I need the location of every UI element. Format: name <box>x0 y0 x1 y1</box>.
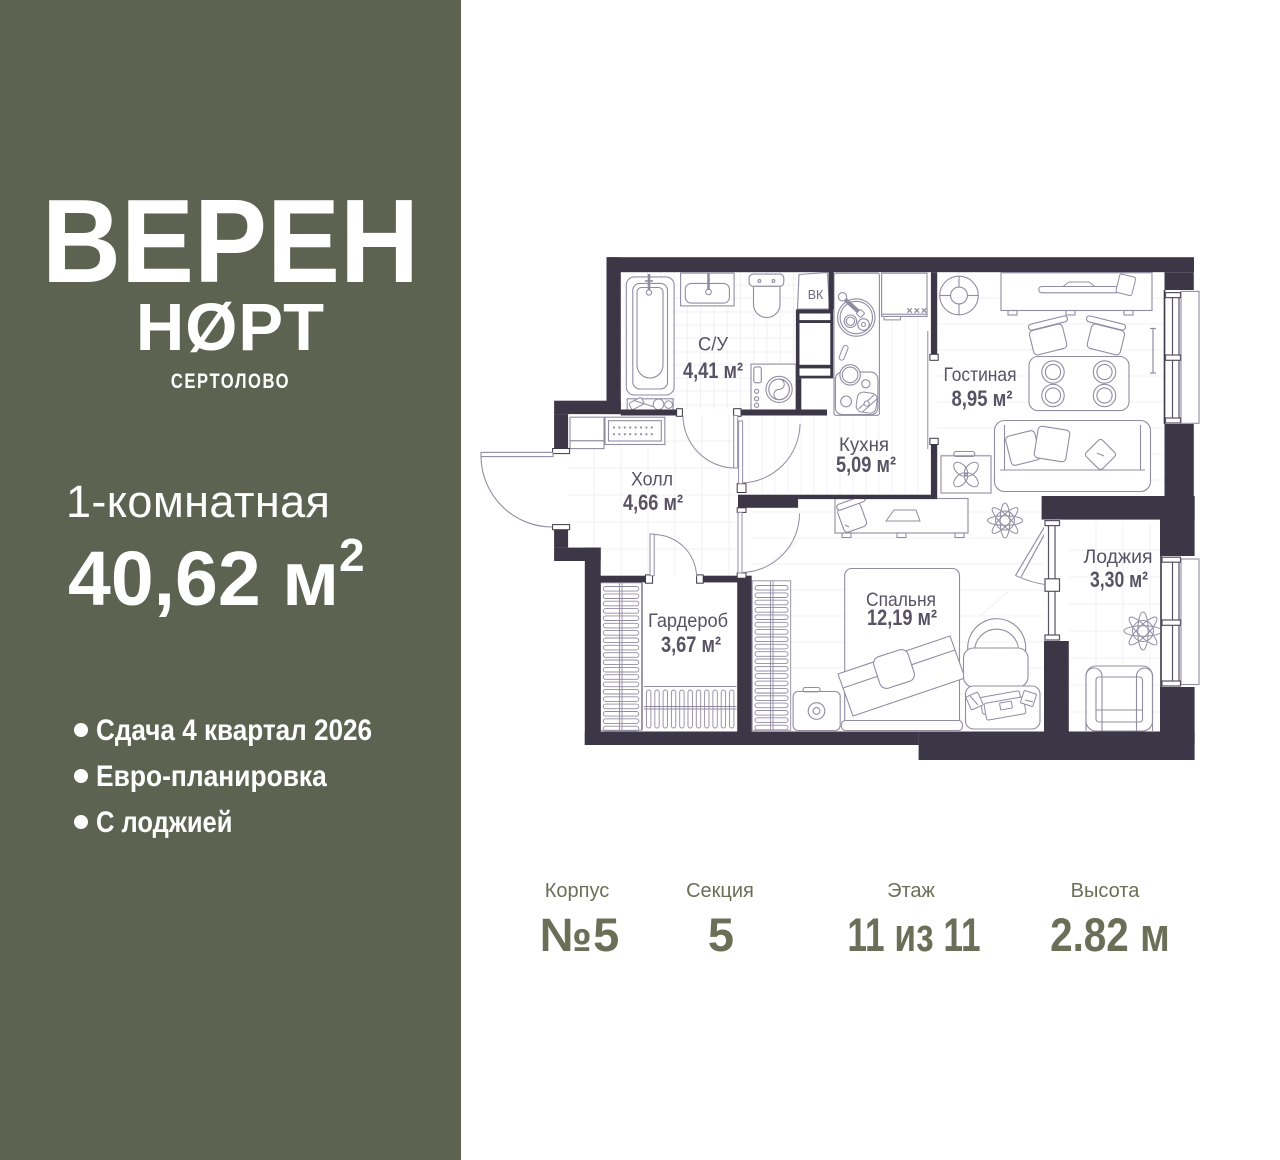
svg-text:3,30 м²: 3,30 м² <box>1090 567 1148 592</box>
svg-text:5,09 м²: 5,09 м² <box>836 452 896 477</box>
svg-text:Холл: Холл <box>631 469 673 491</box>
svg-text:Гардероб: Гардероб <box>648 610 728 632</box>
svg-text:ВК: ВК <box>808 288 824 302</box>
svg-text:3,67 м²: 3,67 м² <box>661 632 721 657</box>
svg-text:4,41 м²: 4,41 м² <box>683 358 743 383</box>
svg-text:С/У: С/У <box>698 334 729 356</box>
svg-text:Гостиная: Гостиная <box>944 364 1017 386</box>
svg-text:4,66 м²: 4,66 м² <box>623 490 683 515</box>
svg-text:Лоджия: Лоджия <box>1084 546 1153 568</box>
svg-text:8,95 м²: 8,95 м² <box>952 386 1013 411</box>
svg-text:12,19 м²: 12,19 м² <box>867 605 937 630</box>
